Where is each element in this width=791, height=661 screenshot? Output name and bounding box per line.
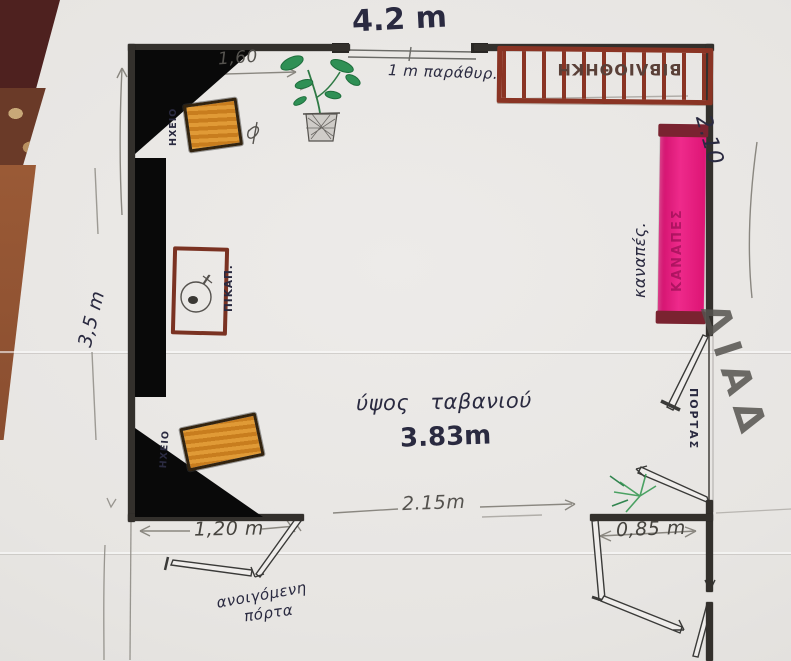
wall-left — [128, 44, 135, 522]
pencil-squiggle — [248, 122, 259, 144]
wall-right-corner — [706, 602, 713, 661]
turntable-label: ΠΙΚΑΠ. — [223, 264, 235, 312]
plant-icon — [279, 53, 362, 141]
window-top — [348, 47, 476, 61]
bookshelf-label: ΒΙΒΛΙΟΘΗΚΗ — [543, 60, 695, 79]
plant-scribble-icon — [610, 474, 656, 512]
sofa-label: καναπές. — [630, 222, 649, 298]
ceiling-height-value: 3.83m — [400, 420, 492, 453]
marker-rectangle-left — [135, 158, 166, 397]
dimension-bottom-left: 1,20 m — [194, 517, 264, 540]
window-label: 1 m παράθυρ. — [388, 61, 499, 83]
dimension-top-width: 4.2 m — [351, 0, 448, 39]
speaker-top-label: ΗΧΕΙΟ — [168, 108, 179, 146]
dimension-bottom-right: 0,85 m — [616, 517, 687, 541]
sofa-inner-label: ΚΑΝΑΠΕΣ — [670, 208, 685, 292]
dimension-left-offset: 1,60 — [217, 47, 258, 70]
ceiling-height-label: ύψος ταβανιού — [356, 388, 532, 415]
turntable — [171, 246, 229, 335]
dimension-bottom-middle: 2.15m — [402, 491, 466, 515]
speaker-top — [183, 97, 243, 152]
door-right-label: ΠΟΡΤΑΣ — [687, 388, 700, 450]
floor-plan-photo: { "drawing_title": "hand-drawn room floo… — [0, 0, 791, 661]
